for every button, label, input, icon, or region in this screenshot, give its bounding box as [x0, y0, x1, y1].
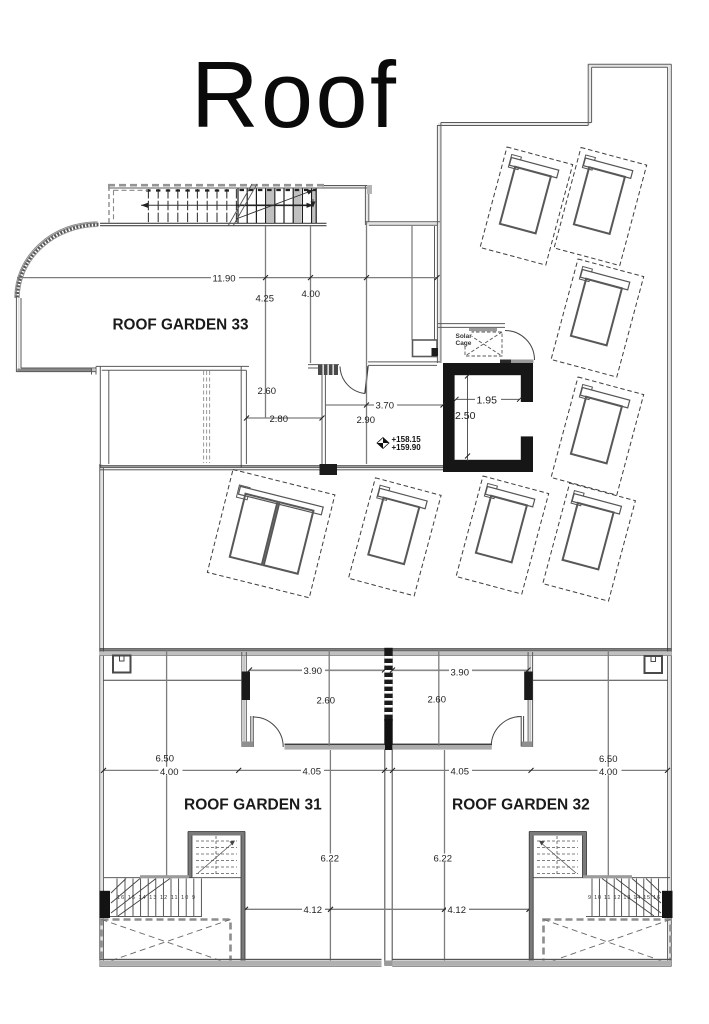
svg-text:4.00: 4.00	[160, 767, 179, 778]
svg-text:2.50: 2.50	[455, 410, 476, 422]
svg-text:11.90: 11.90	[213, 274, 236, 285]
svg-text:16 15 14 13 12 11 10 9: 16 15 14 13 12 11 10 9	[117, 895, 195, 901]
svg-text:4.00: 4.00	[599, 767, 618, 778]
svg-text:ROOF GARDEN 31: ROOF GARDEN 31	[184, 797, 322, 814]
svg-text:2.60: 2.60	[428, 695, 447, 706]
svg-text:2.90: 2.90	[357, 415, 376, 426]
svg-text:3.70: 3.70	[376, 401, 395, 412]
svg-text:2.60: 2.60	[258, 386, 277, 397]
svg-text:Solar: Solar	[456, 333, 473, 340]
svg-text:9 10 11 12 13 14 15 16: 9 10 11 12 13 14 15 16	[588, 895, 660, 901]
svg-text:Cage: Cage	[456, 340, 472, 347]
svg-text:6.22: 6.22	[434, 854, 453, 865]
svg-text:4.05: 4.05	[451, 767, 470, 778]
svg-text:4.05: 4.05	[303, 767, 322, 778]
svg-text:6.22: 6.22	[321, 854, 340, 865]
svg-text:3.90: 3.90	[304, 666, 323, 677]
svg-text:3.90: 3.90	[451, 668, 470, 679]
svg-text:Roof: Roof	[191, 42, 399, 147]
svg-text:2.60: 2.60	[317, 696, 336, 707]
svg-text:6.50: 6.50	[156, 754, 175, 765]
svg-text:6.50: 6.50	[599, 754, 618, 765]
svg-text:4.00: 4.00	[302, 289, 321, 300]
svg-text:4.25: 4.25	[256, 294, 275, 305]
svg-text:4.12: 4.12	[304, 905, 323, 916]
svg-text:2.80: 2.80	[270, 414, 289, 425]
svg-text:4.12: 4.12	[448, 905, 467, 916]
svg-text:1.95: 1.95	[477, 395, 498, 407]
svg-text:+159.90: +159.90	[392, 443, 422, 452]
svg-text:ROOF GARDEN 33: ROOF GARDEN 33	[113, 317, 249, 334]
svg-text:ROOF GARDEN 32: ROOF GARDEN 32	[452, 797, 590, 814]
